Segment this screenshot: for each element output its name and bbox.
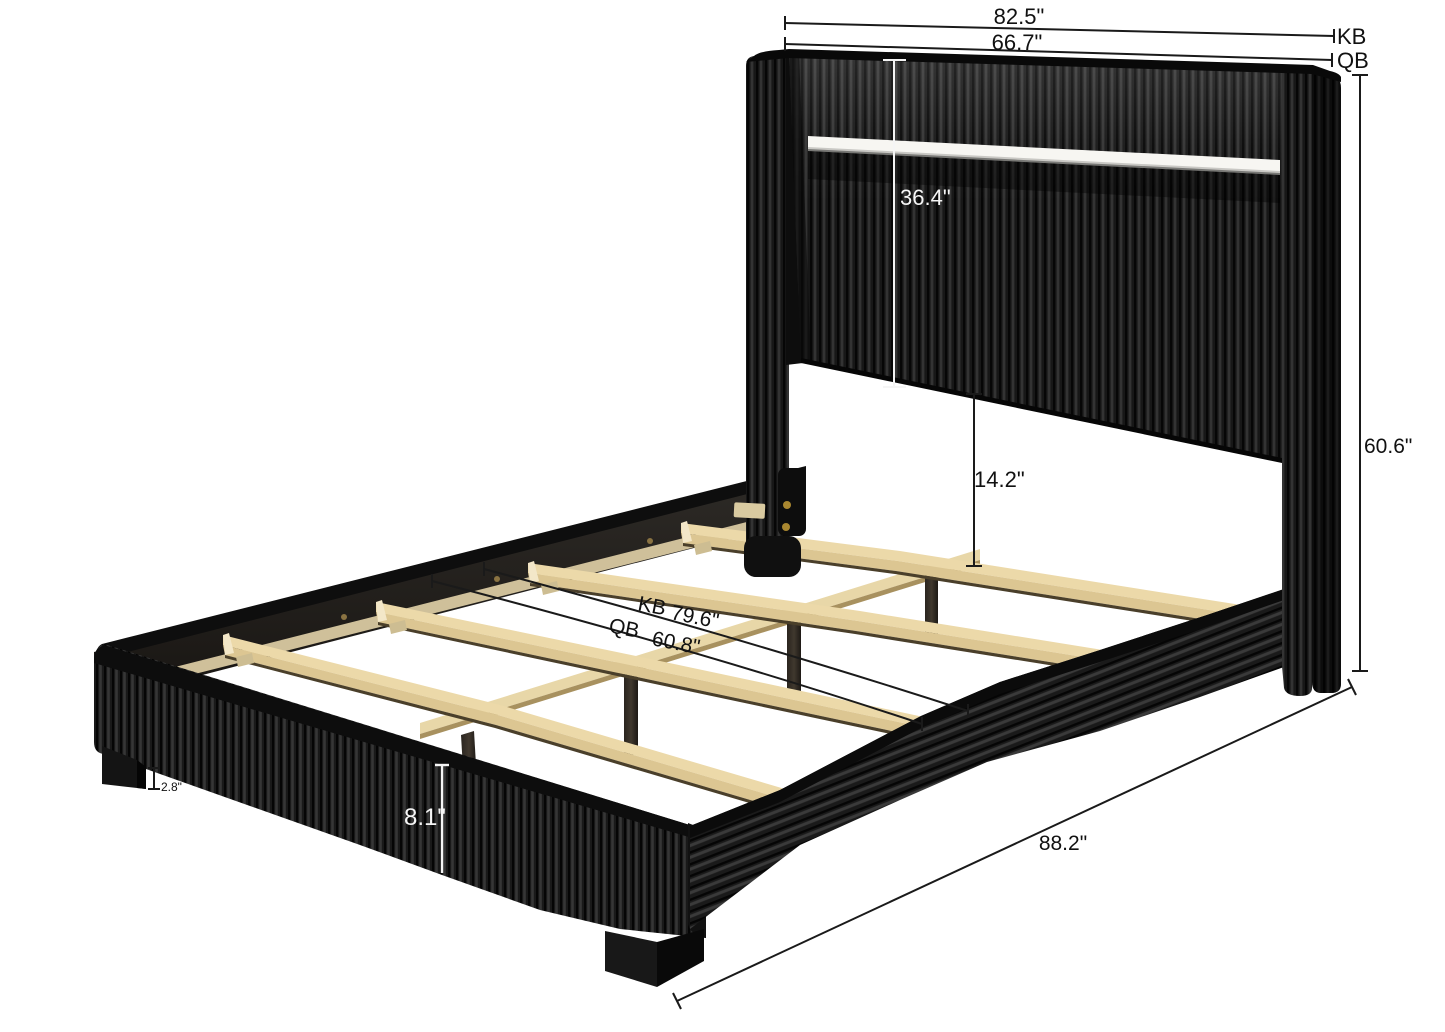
- svg-text:KB: KB: [1337, 24, 1366, 49]
- svg-text:8.1": 8.1": [404, 804, 446, 831]
- svg-text:88.2": 88.2": [1039, 832, 1087, 855]
- svg-text:60.6": 60.6": [1364, 435, 1412, 458]
- svg-text:36.4": 36.4": [900, 185, 951, 210]
- svg-text:QB: QB: [1337, 48, 1369, 73]
- svg-text:66.7": 66.7": [992, 30, 1043, 55]
- svg-text:14.2": 14.2": [974, 467, 1025, 492]
- svg-text:2.8": 2.8": [161, 780, 182, 794]
- svg-text:82.5": 82.5": [994, 4, 1045, 29]
